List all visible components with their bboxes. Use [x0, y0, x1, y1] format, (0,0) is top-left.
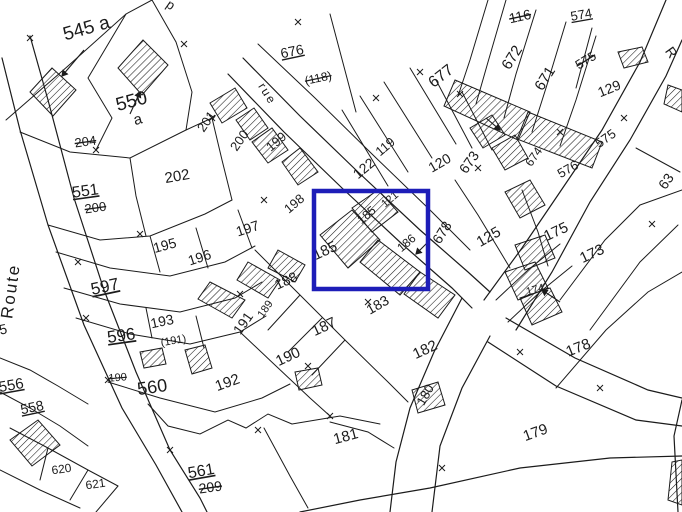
parcel-label-550-suffix: a — [132, 110, 145, 129]
parcel-label-596: 596 — [106, 324, 137, 347]
street-name-rue: rue — [255, 80, 279, 107]
parcel-label-5-fragment: 5 — [0, 320, 9, 337]
building — [10, 420, 60, 466]
parcel-label-119: 119 — [372, 134, 398, 159]
survey-cross-mark — [621, 115, 627, 121]
parcel-label-122: 122 — [350, 154, 378, 181]
parcel-label-191-paren: (191) — [160, 333, 187, 349]
parcel-boundary — [292, 416, 380, 424]
parcel-label-116-struck: 116 — [507, 6, 532, 26]
parcel-label-175: 175 — [541, 219, 571, 245]
parcel-label-181: 181 — [332, 425, 361, 448]
parcel-label-545a: 545 a — [61, 12, 113, 45]
parcel-label-129: 129 — [595, 76, 623, 100]
parcel-label-202: 202 — [163, 166, 191, 187]
parcel-boundary — [130, 158, 146, 236]
survey-cross-mark — [649, 221, 655, 227]
building — [505, 180, 545, 218]
parcel-label-182: 182 — [410, 337, 440, 363]
parcel-label-575-struck: 575 — [572, 48, 598, 72]
street-name-p-fragment: p — [163, 0, 179, 14]
building — [668, 460, 682, 505]
parcel-label-186-inner: 186 — [394, 231, 419, 255]
parcel-label-204-struck: 204 — [74, 133, 98, 151]
parcel-label-198: 198 — [281, 191, 307, 216]
cadastral-map[interactable]: 545 a550a204551200202201200199198676(118… — [0, 0, 682, 512]
parcel-label-672: 672 — [498, 42, 526, 72]
survey-cross-mark — [439, 465, 445, 471]
parcel-boundary — [476, 0, 506, 104]
parcel-label-620: 620 — [51, 461, 73, 478]
building — [282, 148, 318, 185]
survey-cross-mark — [261, 197, 267, 203]
parcel-label-190-struck: 190 — [108, 371, 127, 385]
survey-cross-mark — [137, 231, 143, 237]
survey-cross-mark — [417, 69, 423, 75]
map-layers: 545 a550a204551200202201200199198676(118… — [0, 0, 682, 512]
parcel-label-197: 197 — [234, 217, 261, 240]
cadastral-map-svg[interactable]: 545 a550a204551200202201200199198676(118… — [0, 0, 682, 512]
parcel-boundary — [268, 295, 300, 330]
parcel-label-179: 179 — [521, 421, 550, 446]
parcel-label-63: 63 — [655, 170, 677, 192]
survey-cross-mark — [167, 447, 173, 453]
parcel-label-183: 183 — [363, 292, 391, 318]
parcel-boundary — [455, 180, 510, 268]
parcel-label-671: 671 — [531, 63, 559, 93]
parcel-label-551: 551 — [71, 181, 100, 202]
survey-cross-mark — [83, 315, 89, 321]
survey-cross-mark — [517, 349, 523, 355]
parcel-boundary — [212, 118, 232, 200]
parcel-label-190: 190 — [273, 344, 303, 370]
survey-cross-mark — [597, 385, 603, 391]
building — [140, 348, 166, 368]
parcel-label-196: 196 — [186, 246, 213, 269]
survey-cross-mark — [75, 259, 81, 265]
parcel-label-193: 193 — [149, 311, 175, 332]
parcel-boundary — [590, 225, 678, 330]
arrow-mark — [62, 50, 84, 76]
building — [664, 85, 682, 112]
parcel-label-195: 195 — [151, 234, 178, 256]
building — [295, 368, 322, 390]
survey-cross-mark — [181, 41, 187, 47]
parcel-label-556: 556 — [0, 375, 25, 396]
parcel-boundary — [636, 148, 680, 172]
parcel-label-200-struck: 200 — [84, 199, 108, 217]
parcel-label-187: 187 — [309, 314, 339, 340]
bottom-curve — [300, 456, 682, 512]
parcel-boundary — [556, 272, 682, 388]
parcel-label-209-struck: 209 — [198, 477, 224, 496]
parcel-boundary — [148, 404, 292, 434]
parcel-label-574: 574 — [569, 5, 593, 24]
parcel-label-676: 676 — [279, 41, 305, 62]
parcel-boundary — [108, 382, 290, 412]
se-road-north-edge — [506, 318, 682, 398]
parcel-label-178: 178 — [564, 335, 594, 360]
parcel-label-125: 125 — [474, 223, 504, 250]
parcel-boundary — [264, 428, 308, 508]
survey-cross-mark — [295, 19, 301, 25]
parcel-label-678: 678 — [429, 218, 455, 246]
parcel-label-621: 621 — [85, 476, 107, 493]
building — [185, 345, 212, 374]
parcel-label-560: 560 — [136, 375, 169, 399]
building — [198, 282, 245, 318]
parcel-boundary — [458, 0, 488, 96]
parcel-label-118-struck: (118) — [303, 68, 332, 87]
parcel-boundary — [640, 190, 682, 205]
parcel-boundary — [196, 316, 204, 348]
parcel-label-597: 597 — [89, 274, 121, 298]
parcel-label-173: 173 — [577, 241, 607, 267]
parcel-label-673: 673 — [456, 148, 483, 176]
parcel-boundary — [20, 130, 186, 158]
building — [30, 68, 76, 116]
parcel-boundary — [0, 470, 80, 508]
parcel-boundary — [330, 14, 356, 112]
survey-cross-mark — [373, 95, 379, 101]
survey-cross-mark — [255, 427, 261, 433]
survey-cross-mark — [305, 363, 311, 369]
parcel-label-189: 189 — [255, 298, 275, 320]
building — [618, 47, 648, 68]
street-name-route: Route — [0, 262, 24, 319]
parcel-label-192: 192 — [213, 371, 242, 396]
